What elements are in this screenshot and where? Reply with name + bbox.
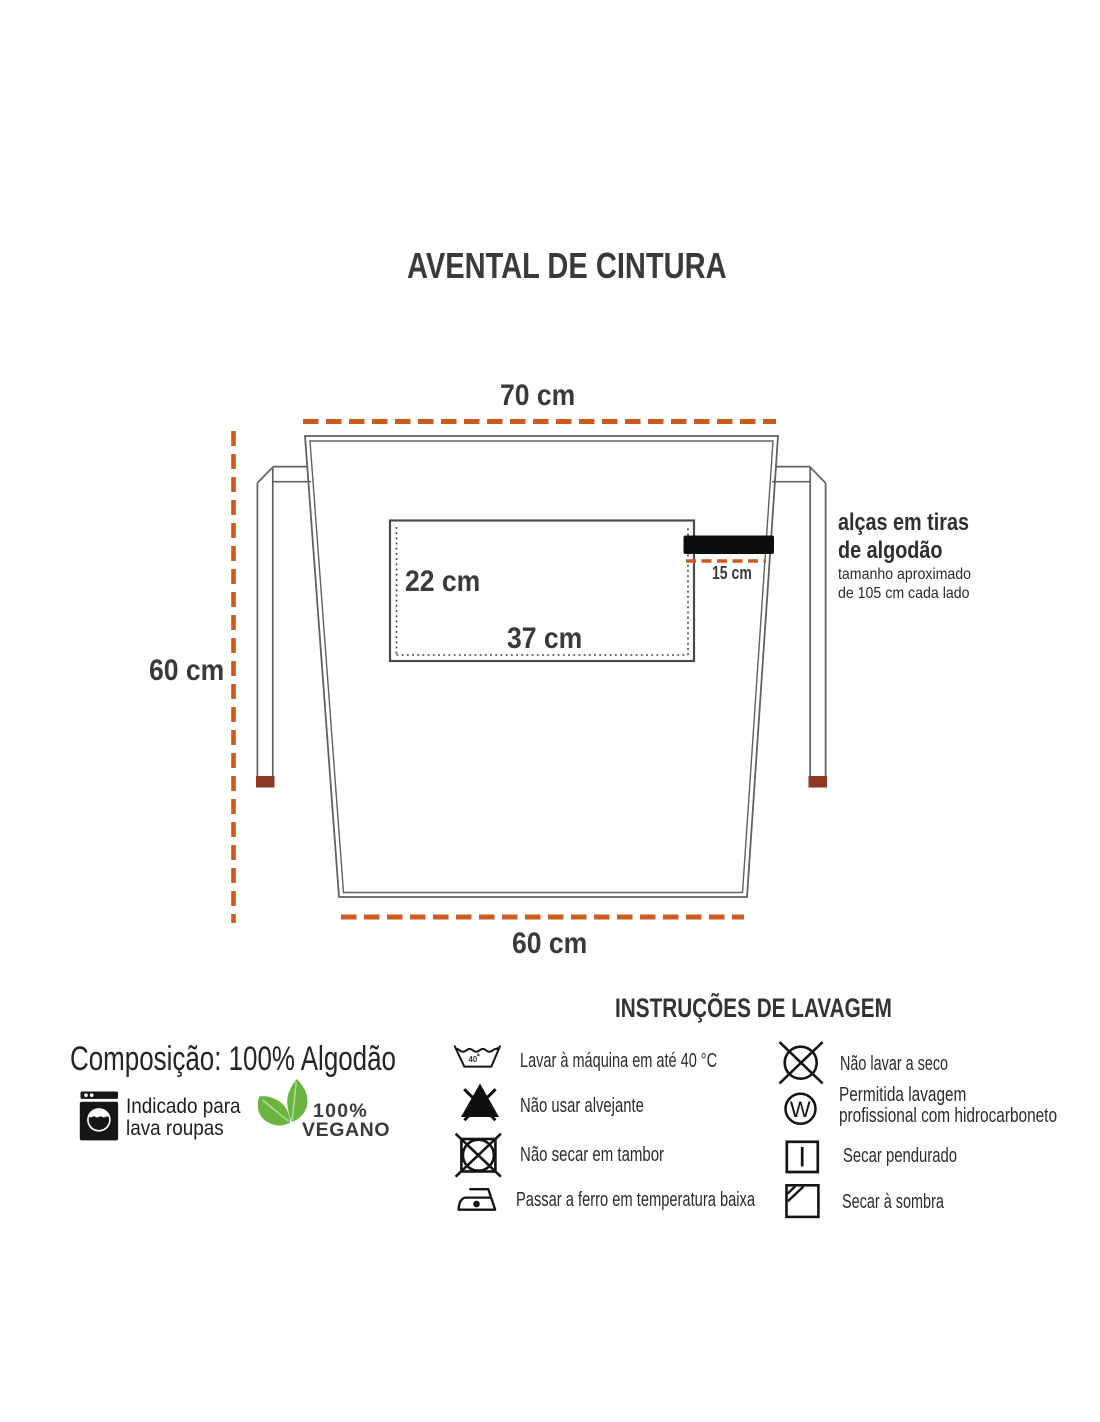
svg-text:40: 40 [469, 1055, 478, 1064]
svg-text:W: W [790, 1097, 811, 1122]
